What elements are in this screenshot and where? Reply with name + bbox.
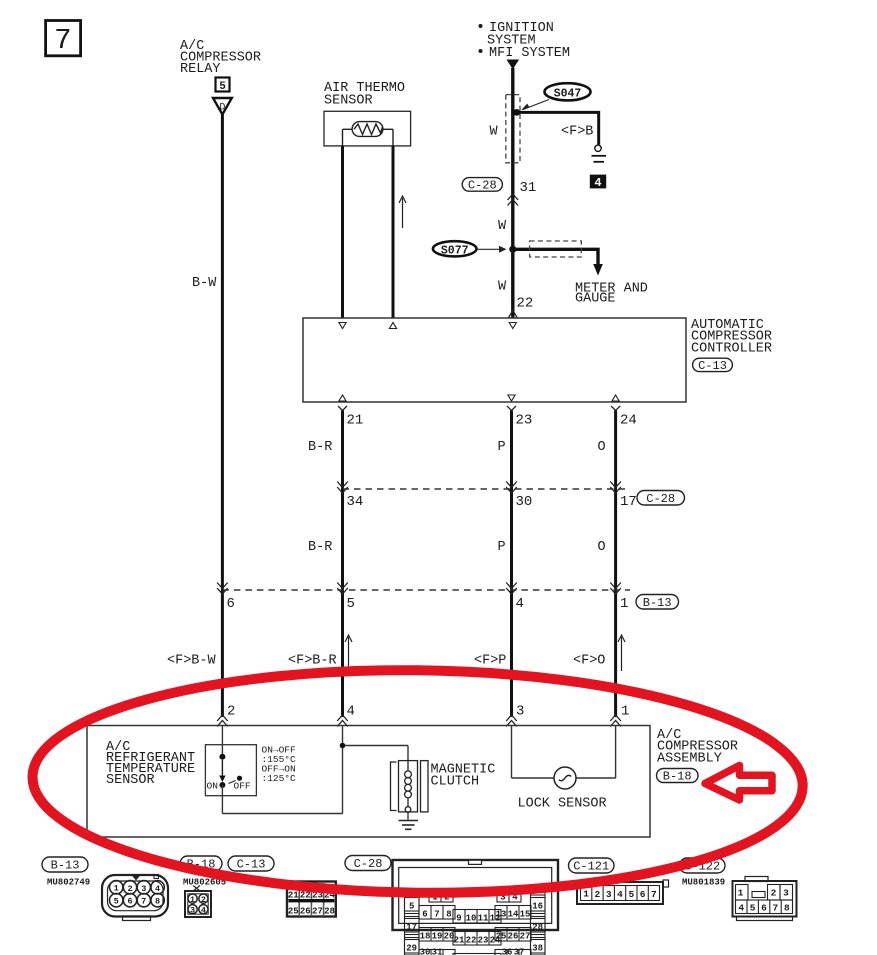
svg-text:<F>B: <F>B <box>561 125 593 140</box>
svg-text:27: 27 <box>312 907 323 917</box>
svg-text:W: W <box>498 280 507 295</box>
svg-text:B-13: B-13 <box>51 859 80 873</box>
svg-text:14: 14 <box>508 910 519 920</box>
svg-text:1: 1 <box>114 884 119 894</box>
svg-text:15: 15 <box>520 910 531 920</box>
svg-text:5: 5 <box>409 902 414 912</box>
svg-text:9: 9 <box>456 914 461 924</box>
svg-text:13: 13 <box>496 910 507 920</box>
svg-text:8: 8 <box>446 910 451 920</box>
svg-text:C-121: C-121 <box>573 860 609 874</box>
svg-text:5: 5 <box>628 889 634 900</box>
svg-text:5: 5 <box>219 81 226 93</box>
svg-text:2: 2 <box>771 888 777 899</box>
svg-text:4: 4 <box>594 176 601 190</box>
svg-text:5: 5 <box>750 903 756 914</box>
svg-text:SENSOR: SENSOR <box>324 94 373 109</box>
svg-text:O: O <box>598 540 606 555</box>
svg-text:31: 31 <box>432 948 443 955</box>
svg-text:3: 3 <box>516 704 524 720</box>
svg-text:8: 8 <box>155 897 160 907</box>
svg-text:P: P <box>498 440 506 455</box>
svg-text:GAUGE: GAUGE <box>575 292 616 307</box>
svg-text:D: D <box>219 103 225 114</box>
svg-text:4: 4 <box>347 704 355 720</box>
svg-text:37: 37 <box>514 948 525 955</box>
svg-text:<F>O: <F>O <box>573 654 605 669</box>
svg-text:2: 2 <box>127 884 132 894</box>
svg-text:7: 7 <box>141 897 146 907</box>
svg-text:21: 21 <box>454 936 465 946</box>
svg-text:17: 17 <box>620 494 637 510</box>
svg-text:36: 36 <box>502 948 513 955</box>
svg-text:11: 11 <box>478 914 489 924</box>
svg-text:1: 1 <box>583 889 589 900</box>
svg-text:SENSOR: SENSOR <box>106 773 155 788</box>
svg-text:4: 4 <box>617 889 623 900</box>
svg-text:B-13: B-13 <box>643 596 672 610</box>
svg-text:W: W <box>498 219 507 234</box>
svg-text:30: 30 <box>420 948 431 955</box>
svg-text:26: 26 <box>300 907 311 917</box>
svg-text:34: 34 <box>347 494 364 510</box>
svg-text:25: 25 <box>496 932 507 942</box>
svg-text:C-28: C-28 <box>468 178 497 192</box>
svg-text:OFF: OFF <box>234 781 251 792</box>
svg-text:C-13: C-13 <box>237 858 266 872</box>
svg-text:C-28: C-28 <box>354 857 383 871</box>
svg-text:MU802749: MU802749 <box>47 878 90 888</box>
svg-text:27: 27 <box>520 932 531 942</box>
svg-text:3: 3 <box>783 888 789 899</box>
svg-text:CLUTCH: CLUTCH <box>431 775 480 790</box>
svg-text:LOCK SENSOR: LOCK SENSOR <box>518 797 607 812</box>
svg-text:4: 4 <box>155 884 160 894</box>
svg-text:38: 38 <box>532 944 543 954</box>
svg-text:4: 4 <box>516 596 524 612</box>
svg-text:7: 7 <box>434 910 439 920</box>
svg-text:1: 1 <box>621 704 629 720</box>
svg-text:18: 18 <box>420 932 431 942</box>
svg-text:5: 5 <box>114 897 119 907</box>
svg-text:B-18: B-18 <box>663 770 692 784</box>
svg-text:6: 6 <box>127 897 132 907</box>
svg-text:7: 7 <box>54 24 71 57</box>
svg-text:2: 2 <box>595 889 601 900</box>
svg-text:1: 1 <box>190 895 195 905</box>
svg-text:CONTROLLER: CONTROLLER <box>691 341 772 356</box>
svg-text:S047: S047 <box>554 87 582 100</box>
svg-text:2: 2 <box>201 895 206 905</box>
svg-text:22: 22 <box>517 296 534 312</box>
svg-text:B-R: B-R <box>308 440 332 455</box>
svg-text:3: 3 <box>606 889 612 900</box>
svg-text:28: 28 <box>324 907 335 917</box>
svg-text:5: 5 <box>347 596 355 612</box>
svg-text:MU801839: MU801839 <box>682 878 725 888</box>
svg-text:7: 7 <box>773 903 779 914</box>
svg-text:MFI SYSTEM: MFI SYSTEM <box>489 46 570 61</box>
svg-text:1: 1 <box>620 596 628 612</box>
svg-text:23: 23 <box>516 413 533 429</box>
svg-text:7: 7 <box>651 889 657 900</box>
svg-text:23: 23 <box>478 936 489 946</box>
svg-text:30: 30 <box>516 494 533 510</box>
svg-text:6: 6 <box>422 910 427 920</box>
svg-text:ON: ON <box>207 781 218 792</box>
svg-text:22: 22 <box>466 936 477 946</box>
svg-text:6: 6 <box>227 596 235 612</box>
svg-text:6: 6 <box>640 889 646 900</box>
svg-text:24: 24 <box>620 413 637 429</box>
svg-text:<F>B-W: <F>B-W <box>167 654 217 669</box>
svg-text:31: 31 <box>520 180 537 196</box>
svg-text:C-13: C-13 <box>698 359 727 373</box>
svg-text:ASSEMBLY: ASSEMBLY <box>657 751 722 766</box>
svg-text:26: 26 <box>508 932 519 942</box>
svg-text:25: 25 <box>288 907 299 917</box>
svg-text:17: 17 <box>406 923 417 933</box>
svg-text:28: 28 <box>532 923 543 933</box>
svg-text:S077: S077 <box>441 244 469 257</box>
svg-text:8: 8 <box>784 903 790 914</box>
svg-text::125°C: :125°C <box>262 773 297 784</box>
svg-text:3: 3 <box>141 884 146 894</box>
svg-text:10: 10 <box>466 914 477 924</box>
svg-text:21: 21 <box>288 891 299 901</box>
svg-text:<F>B-R: <F>B-R <box>288 654 337 669</box>
svg-text:P: P <box>498 540 506 555</box>
svg-text:6: 6 <box>761 903 767 914</box>
svg-text:21: 21 <box>347 413 364 429</box>
svg-text:3: 3 <box>190 905 195 915</box>
svg-text:B-W: B-W <box>192 276 217 291</box>
svg-text:C-28: C-28 <box>646 492 675 506</box>
svg-text:1: 1 <box>738 888 744 899</box>
svg-text:2: 2 <box>227 704 235 720</box>
svg-text:16: 16 <box>532 902 543 912</box>
svg-text:4: 4 <box>738 903 744 914</box>
svg-text:B-R: B-R <box>308 540 332 555</box>
svg-text:19: 19 <box>432 932 443 942</box>
svg-text:O: O <box>598 440 606 455</box>
svg-text:4: 4 <box>201 905 206 915</box>
svg-text:W: W <box>490 125 499 140</box>
svg-text:<F>P: <F>P <box>474 654 506 669</box>
svg-text:RELAY: RELAY <box>180 62 221 77</box>
svg-text:29: 29 <box>406 944 417 954</box>
